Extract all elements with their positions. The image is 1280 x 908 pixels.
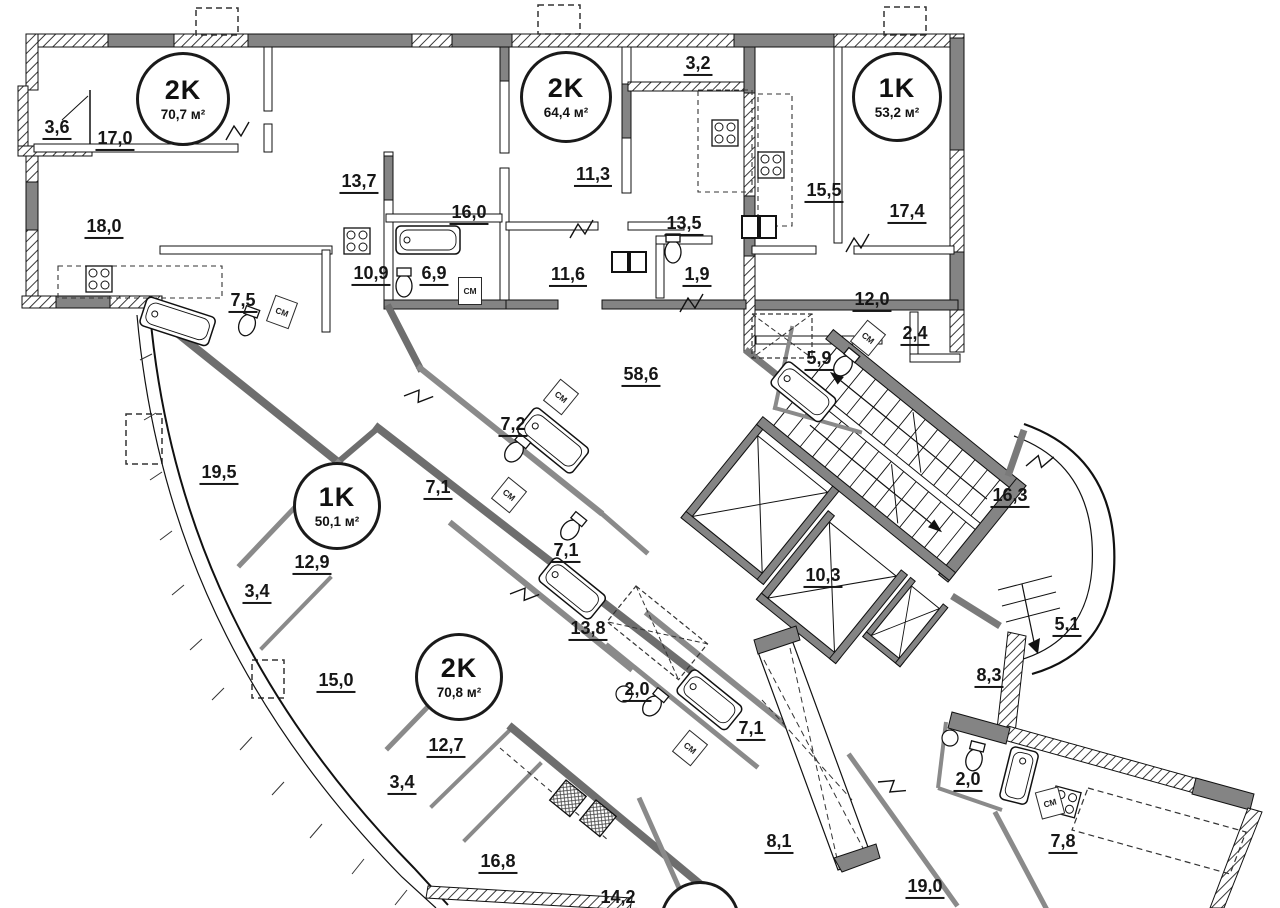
toilet-icon xyxy=(665,234,681,263)
room-area-label: 2,4 xyxy=(900,324,929,346)
room-area-label: 10,3 xyxy=(803,566,842,588)
room-area-label: 3,4 xyxy=(387,773,416,795)
room-area-label: 15,5 xyxy=(804,181,843,203)
room-area-label: 3,6 xyxy=(42,118,71,140)
apartment-badge: 1K50,1 м² xyxy=(293,462,381,550)
apartment-area: 50,1 м² xyxy=(315,514,360,529)
room-area-label: 2,0 xyxy=(622,680,651,702)
apartment-type: 1K xyxy=(319,484,356,511)
toilet-icon xyxy=(557,511,588,544)
sink-icon xyxy=(942,730,958,746)
apartment-area: 70,7 м² xyxy=(161,107,206,122)
room-area-label: 12,7 xyxy=(426,736,465,758)
room-area-label: 6,9 xyxy=(419,264,448,286)
bathtub-icon xyxy=(139,296,217,347)
room-area-label: 7,1 xyxy=(736,719,765,741)
room-area-label: 1,9 xyxy=(682,265,711,287)
apartment-badge: 2K70,7 м² xyxy=(136,52,230,146)
room-area-label: 11,6 xyxy=(549,265,587,287)
room-area-label: 13,7 xyxy=(339,172,378,194)
room-area-label: 5,9 xyxy=(804,349,833,371)
room-area-label: 19,5 xyxy=(199,463,238,485)
room-area-label: 15,0 xyxy=(316,671,355,693)
room-area-label: 16,0 xyxy=(449,203,488,225)
room-area-label: 19,0 xyxy=(905,877,944,899)
apartment-area: 70,8 м² xyxy=(437,685,482,700)
room-area-label: 3,2 xyxy=(683,54,712,76)
room-area-label: 58,6 xyxy=(621,365,660,387)
room-area-label: 7,1 xyxy=(423,478,452,500)
room-area-label: 18,0 xyxy=(84,217,123,239)
room-area-label: 14,2 xyxy=(598,888,637,908)
room-area-label: 7,1 xyxy=(551,541,580,563)
stove-icon xyxy=(86,266,112,292)
washing-machine-box: СМ xyxy=(458,277,482,305)
apartment-badge: 2K70,8 м² xyxy=(415,633,503,721)
room-area-label: 3,4 xyxy=(242,582,271,604)
room-area-label: 13,8 xyxy=(568,619,607,641)
stove-icon xyxy=(758,152,784,178)
room-area-label: 5,1 xyxy=(1052,615,1081,637)
room-area-label: 16,8 xyxy=(478,852,517,874)
stair-elevator-core xyxy=(671,330,1039,697)
bathtub-icon xyxy=(999,746,1039,805)
apartment-type: 1K xyxy=(879,75,916,102)
room-area-label: 10,9 xyxy=(351,264,390,286)
bathtub-icon xyxy=(537,556,607,621)
stove-icon xyxy=(344,228,370,254)
floor-plan-canvas: 2K70,7 м²2K64,4 м²1K53,2 м²1K50,1 м²2K70… xyxy=(0,0,1280,908)
room-area-label: 13,5 xyxy=(664,214,703,236)
room-area-label: 8,1 xyxy=(764,832,793,854)
room-area-label: 7,5 xyxy=(228,291,257,313)
apartment-type: 2K xyxy=(548,75,585,102)
bathtub-icon xyxy=(396,226,460,254)
room-area-label: 11,3 xyxy=(574,165,612,187)
toilet-icon xyxy=(964,741,987,773)
stove-icon xyxy=(712,120,738,146)
room-area-label: 17,0 xyxy=(95,129,134,151)
apartment-badge: 1K53,2 м² xyxy=(852,52,942,142)
room-area-label: 8,3 xyxy=(974,666,1003,688)
apartment-type: 2K xyxy=(165,77,202,104)
toilet-icon xyxy=(396,268,412,297)
room-area-label: 12,0 xyxy=(852,290,891,312)
apartment-badge: 2K64,4 м² xyxy=(520,51,612,143)
apartment-area: 64,4 м² xyxy=(544,105,589,120)
room-area-label: 2,0 xyxy=(953,770,982,792)
apartment-type: 2K xyxy=(441,655,478,682)
apartment-area: 53,2 м² xyxy=(875,105,920,120)
room-area-label: 16,3 xyxy=(990,486,1029,508)
room-area-label: 7,2 xyxy=(498,415,527,437)
bathtub-icon xyxy=(675,668,744,732)
room-area-label: 17,4 xyxy=(887,202,926,224)
room-area-label: 7,8 xyxy=(1048,832,1077,854)
room-area-label: 12,9 xyxy=(292,553,331,575)
